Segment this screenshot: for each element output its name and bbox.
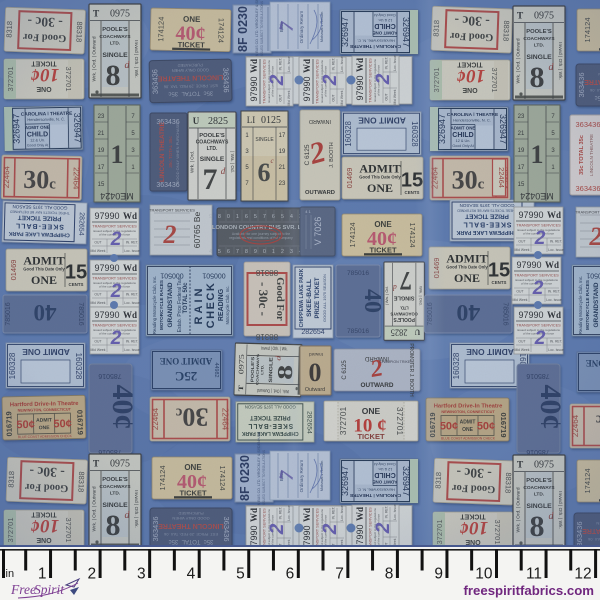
svg-text:10: 10 xyxy=(475,566,493,583)
svg-text:freespiritfabrics.com: freespiritfabrics.com xyxy=(464,583,594,598)
svg-text:7: 7 xyxy=(335,566,344,583)
svg-text:12: 12 xyxy=(574,566,591,583)
svg-text:1: 1 xyxy=(38,566,47,583)
svg-text:Free: Free xyxy=(10,582,36,597)
svg-text:3: 3 xyxy=(137,566,146,583)
svg-text:2: 2 xyxy=(87,566,96,583)
svg-text:5: 5 xyxy=(236,566,245,583)
svg-text:Spirit: Spirit xyxy=(34,582,65,597)
svg-text:8: 8 xyxy=(385,566,394,583)
svg-text:4: 4 xyxy=(187,566,196,583)
svg-text:in: in xyxy=(6,568,15,580)
svg-text:11: 11 xyxy=(526,566,542,583)
svg-text:9: 9 xyxy=(434,566,443,583)
svg-text:6: 6 xyxy=(286,566,295,583)
